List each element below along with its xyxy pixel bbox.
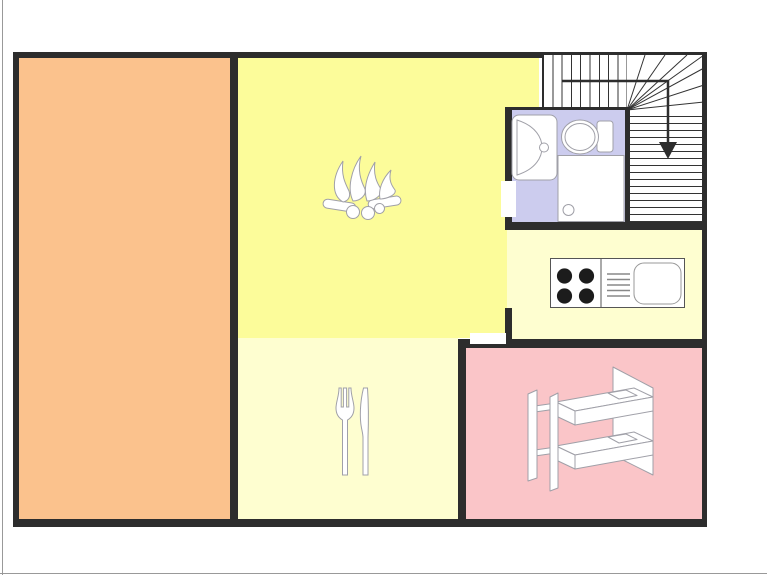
toilet-icon: [562, 120, 614, 154]
bedroom-door-opening: [470, 333, 506, 344]
stone: [347, 206, 360, 219]
bed-post-mid: [550, 393, 558, 491]
wall-top-over-stairs: [541, 52, 707, 55]
page-edge-left: [2, 0, 3, 575]
wall-outer-left: [13, 52, 19, 527]
wall-stairs-left-edge: [542, 52, 544, 110]
knife: [360, 388, 368, 475]
wall-outer-right: [702, 52, 707, 527]
bath-sink-icon: [512, 115, 557, 180]
flame: [365, 162, 381, 201]
shower-icon: [558, 156, 624, 222]
wall-outer-top: [13, 52, 543, 58]
flame: [350, 156, 365, 201]
stone: [375, 204, 385, 214]
page-edge-bottom: [0, 573, 767, 574]
wall-outer-bottom: [13, 519, 707, 527]
bathroom-fixtures: [505, 108, 630, 230]
stone: [362, 207, 375, 220]
bed-post-left: [528, 390, 537, 481]
flame: [334, 161, 349, 202]
flame: [380, 170, 396, 199]
living-room-extension: [505, 58, 539, 108]
kitchen-sink-icon: [634, 263, 681, 304]
left-room: [19, 58, 230, 519]
wall-bedroom-left: [458, 339, 466, 527]
wall-left-room-divider: [230, 52, 238, 527]
fork-knife-icon: [330, 386, 378, 478]
kitchen-unit: [550, 258, 685, 308]
floor-plan-canvas: [0, 0, 767, 575]
fork: [336, 388, 354, 475]
campfire-icon: [322, 150, 404, 220]
bunk-bed-icon: [520, 360, 660, 492]
